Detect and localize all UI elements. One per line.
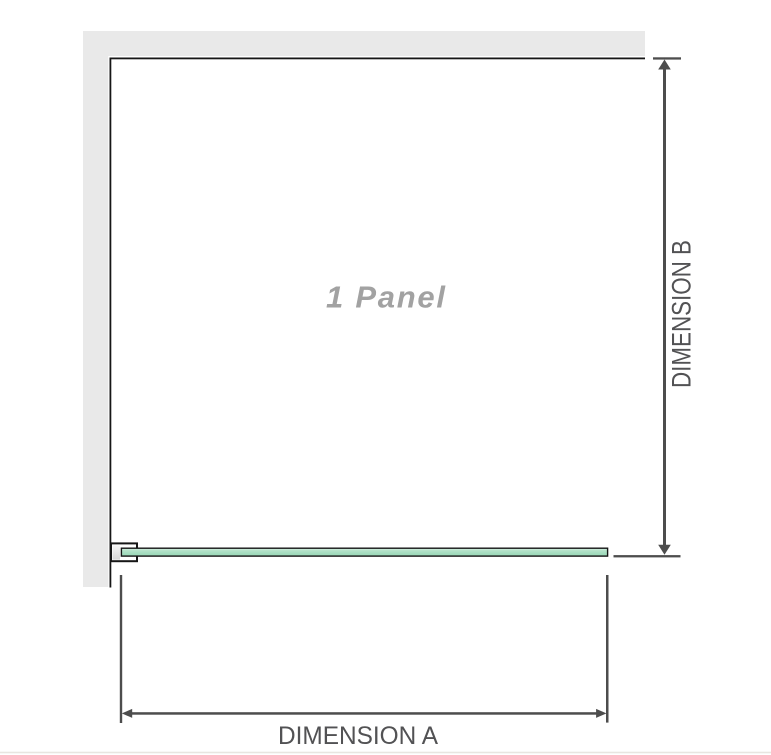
- svg-text:1 Panel: 1 Panel: [326, 280, 446, 315]
- svg-text:DIMENSION A: DIMENSION A: [278, 722, 438, 750]
- svg-text:DIMENSION B: DIMENSION B: [667, 240, 697, 388]
